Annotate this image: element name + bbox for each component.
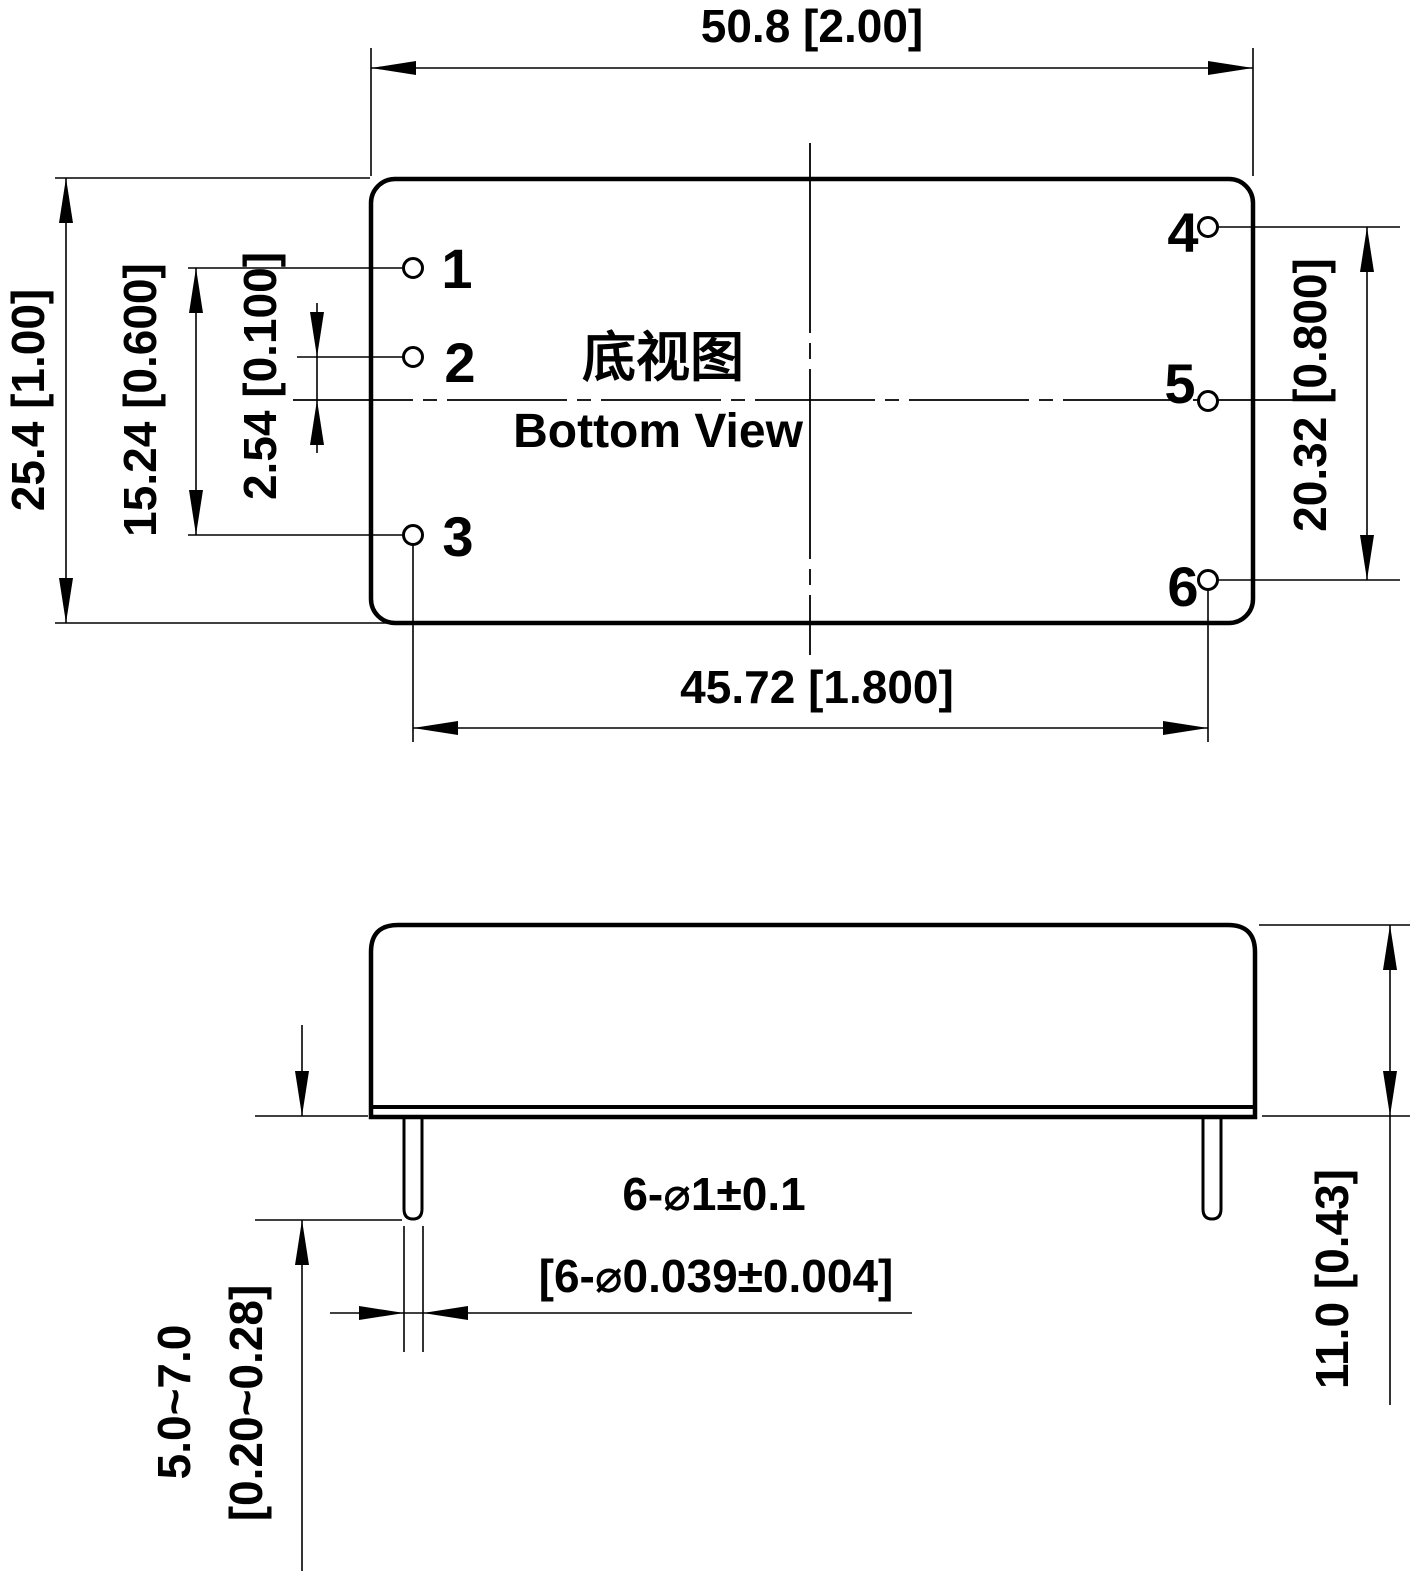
arrowhead: [423, 1306, 468, 1320]
pin-4-label: 4: [1167, 201, 1198, 264]
technical-drawing-sheet: 50.8 [2.00] 25.4 [1.00] 15.24 [0.600] 2.…: [0, 0, 1414, 1573]
arrowhead: [59, 178, 73, 223]
dim-pin-length-mm: 5.0~7.0: [148, 1325, 200, 1480]
dim-overall-width: 50.8 [2.00]: [701, 0, 923, 52]
arrowhead: [1360, 227, 1374, 272]
arrowhead: [1208, 61, 1253, 75]
arrowhead: [189, 490, 203, 535]
pin-3-label: 3: [442, 505, 473, 568]
dim-pin4-pin6-spacing: 20.32 [0.800]: [1284, 258, 1336, 532]
arrowhead: [371, 61, 416, 75]
pin-4-hole: [1199, 218, 1218, 237]
dim-pin-row-spacing: 45.72 [1.800]: [680, 661, 954, 713]
dimension-drawing-svg: 50.8 [2.00] 25.4 [1.00] 15.24 [0.600] 2.…: [0, 0, 1414, 1573]
side-view-outline: [371, 925, 1255, 1117]
pin-5-hole: [1199, 392, 1218, 411]
arrowhead: [295, 1071, 309, 1116]
arrowhead: [1383, 1071, 1397, 1116]
bottom-view-outline: [371, 179, 1253, 623]
dim-case-height: 11.0 [0.43]: [1306, 1169, 1358, 1389]
dim-pin2-center-offset: 2.54 [0.100]: [234, 252, 286, 500]
pin-2-hole: [404, 348, 423, 367]
arrowhead: [295, 1220, 309, 1265]
arrowhead: [413, 721, 458, 735]
pin-6-hole: [1199, 571, 1218, 590]
side-view-pin-left: [404, 1117, 422, 1219]
arrowhead: [59, 578, 73, 623]
arrowhead: [1163, 721, 1208, 735]
arrowhead: [310, 312, 324, 357]
side-view-pin-right: [1203, 1117, 1221, 1219]
view-title-cn: 底视图: [582, 328, 744, 388]
view-title-en: Bottom View: [513, 405, 803, 458]
arrowhead: [189, 268, 203, 313]
arrowhead: [310, 400, 324, 445]
pin-1-hole: [404, 259, 423, 278]
pin-5-label: 5: [1164, 352, 1195, 415]
pin-6-label: 6: [1167, 555, 1198, 618]
dim-pin-length-inch: [0.20~0.28]: [220, 1285, 272, 1522]
pin-2-label: 2: [444, 331, 475, 394]
arrowhead: [1383, 925, 1397, 970]
dim-pin-diameter-mm: 6-⌀1±0.1: [622, 1168, 805, 1220]
pin-3-hole: [404, 526, 423, 545]
dim-pin-diameter-inch: [6-⌀0.039±0.004]: [539, 1250, 894, 1302]
dim-overall-depth: 25.4 [1.00]: [2, 289, 54, 511]
arrowhead: [359, 1306, 404, 1320]
pin-1-label: 1: [441, 237, 472, 300]
dim-pin1-pin3-spacing: 15.24 [0.600]: [114, 263, 166, 537]
arrowhead: [1360, 535, 1374, 580]
